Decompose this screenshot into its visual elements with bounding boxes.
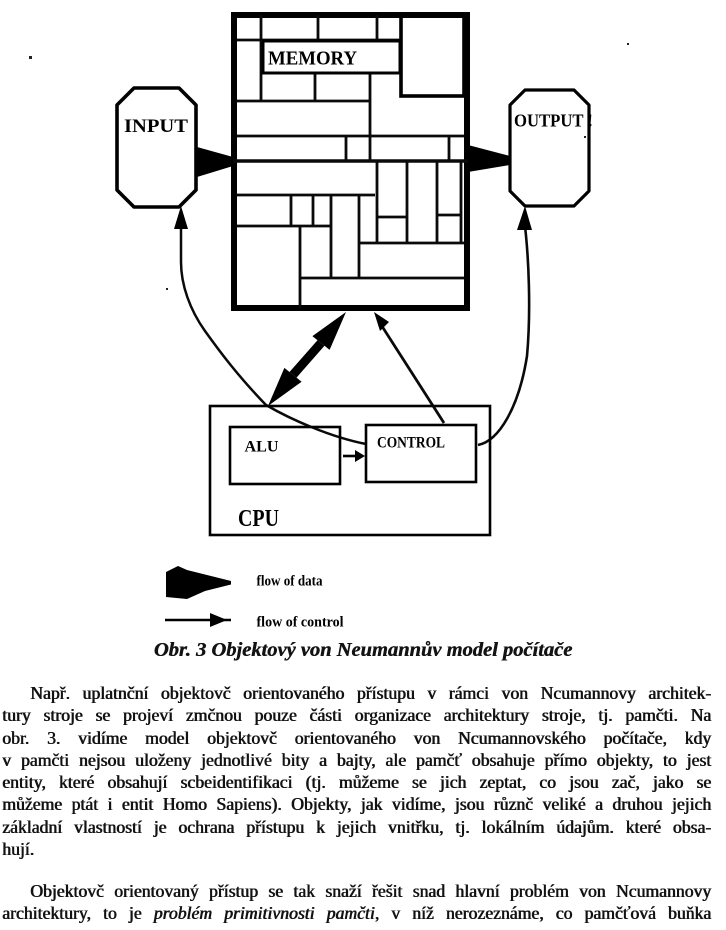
- svg-text:INPUT: INPUT: [124, 117, 189, 137]
- svg-text:CONTROL: CONTROL: [377, 435, 445, 452]
- svg-text:flow of data: flow of data: [257, 574, 323, 590]
- svg-text:CPU: CPU: [238, 506, 279, 532]
- svg-text:flow of control: flow of control: [257, 615, 344, 631]
- svg-text:OUTPUT !: OUTPUT !: [514, 111, 593, 131]
- svg-text:ALU: ALU: [245, 439, 279, 456]
- svg-text:MEMORY: MEMORY: [268, 49, 357, 70]
